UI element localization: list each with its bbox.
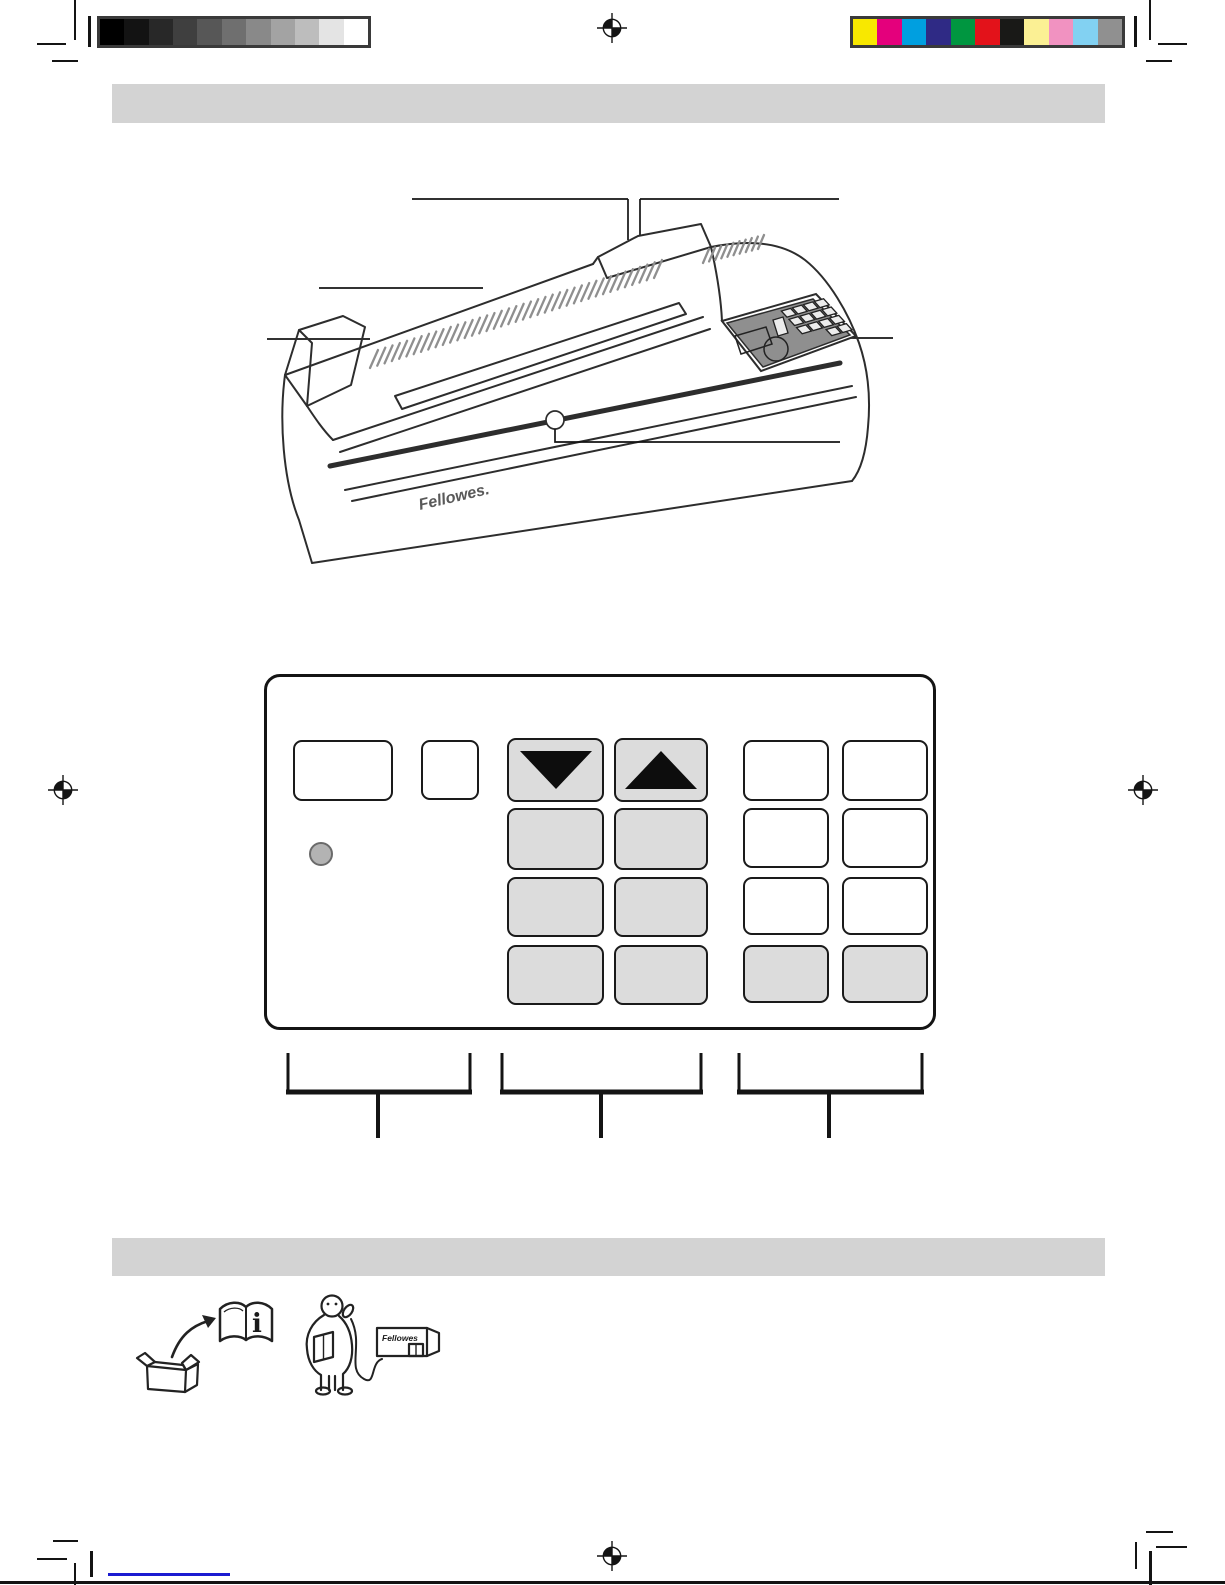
calibration-swatch	[271, 19, 295, 45]
calibration-swatch	[173, 19, 197, 45]
machine-control-panel	[722, 294, 856, 371]
panel-button	[842, 740, 928, 801]
page-bottom-rule	[0, 1581, 1225, 1584]
entry-slot-line	[330, 363, 840, 466]
panel-button	[842, 808, 928, 868]
crop-mark	[1135, 1542, 1137, 1569]
panel-button-wide	[293, 740, 393, 801]
section-header-bar-bottom	[112, 1238, 1105, 1276]
calibration-swatch	[853, 19, 877, 45]
machine-body	[282, 224, 869, 563]
crop-mark	[37, 1558, 67, 1560]
footer-link[interactable]	[108, 1573, 230, 1576]
calibration-swatch	[926, 19, 950, 45]
crop-mark	[53, 1540, 78, 1542]
calibration-swatch	[295, 19, 319, 45]
calibration-swatch	[951, 19, 975, 45]
registration-mark	[595, 11, 629, 45]
calibration-swatch	[1073, 19, 1097, 45]
crop-mark	[1134, 16, 1137, 47]
panel-button	[842, 877, 928, 935]
calibration-swatch	[975, 19, 999, 45]
registration-mark	[46, 773, 80, 807]
bracket-group-2	[500, 1053, 703, 1138]
section-header-bar-top	[112, 84, 1105, 123]
calibration-swatch	[344, 19, 368, 45]
registration-mark	[595, 1539, 629, 1573]
unpacking-icons: i Fellowes	[120, 1285, 540, 1425]
crop-mark	[90, 1551, 93, 1577]
panel-button	[614, 877, 708, 937]
calibration-swatch	[1049, 19, 1073, 45]
open-box-icon	[137, 1353, 199, 1392]
calibration-swatch	[1024, 19, 1048, 45]
control-panel-diagram	[264, 674, 936, 1030]
panel-button	[743, 740, 829, 801]
crop-mark	[1149, 0, 1151, 40]
crop-mark	[1158, 43, 1187, 45]
panel-button	[507, 877, 604, 937]
panel-button	[507, 808, 604, 870]
calibration-swatch	[100, 19, 124, 45]
registration-mark	[1126, 773, 1160, 807]
up-triangle-icon	[625, 751, 697, 789]
info-glyph: i	[252, 1309, 262, 1339]
calibration-swatch	[877, 19, 901, 45]
bracket-group-3	[737, 1053, 924, 1138]
bracket-group-1	[286, 1053, 472, 1138]
calibration-swatch	[319, 19, 343, 45]
color-calibration-bar	[850, 16, 1125, 48]
crop-mark	[1146, 1531, 1173, 1533]
manual-page: Fellowes.	[0, 0, 1225, 1585]
arrow-icon	[172, 1315, 216, 1357]
power-led	[309, 842, 333, 866]
panel-button	[743, 808, 829, 868]
calibration-swatch	[124, 19, 148, 45]
person-phone-icon	[307, 1296, 382, 1395]
panel-button	[614, 808, 708, 870]
crop-mark	[88, 16, 91, 47]
crop-mark	[74, 0, 76, 40]
section-brackets	[255, 1040, 945, 1150]
calibration-swatch	[222, 19, 246, 45]
crop-mark	[1149, 1551, 1152, 1585]
down-triangle-icon	[520, 751, 592, 789]
crop-mark	[52, 60, 78, 62]
crop-mark	[1146, 60, 1172, 62]
calibration-swatch	[1098, 19, 1122, 45]
building-icon: Fellowes	[377, 1328, 439, 1356]
calibration-swatch	[246, 19, 270, 45]
panel-button	[743, 877, 829, 935]
calibration-swatch	[1000, 19, 1024, 45]
building-label: Fellowes	[382, 1333, 418, 1343]
panel-button	[842, 945, 928, 1003]
panel-button	[507, 945, 604, 1005]
crop-mark	[37, 43, 66, 45]
calibration-swatch	[902, 19, 926, 45]
down-arrow-button	[507, 738, 604, 802]
manual-book-icon: i	[220, 1303, 272, 1341]
panel-button	[743, 945, 829, 1003]
up-arrow-button	[614, 738, 708, 802]
calibration-swatch	[197, 19, 221, 45]
panel-button	[421, 740, 479, 800]
laminator-figure: Fellowes.	[255, 190, 905, 570]
calibration-swatch	[149, 19, 173, 45]
grayscale-calibration-bar	[97, 16, 371, 48]
panel-button	[614, 945, 708, 1005]
vent-band	[370, 260, 662, 368]
crop-mark	[1156, 1546, 1187, 1548]
